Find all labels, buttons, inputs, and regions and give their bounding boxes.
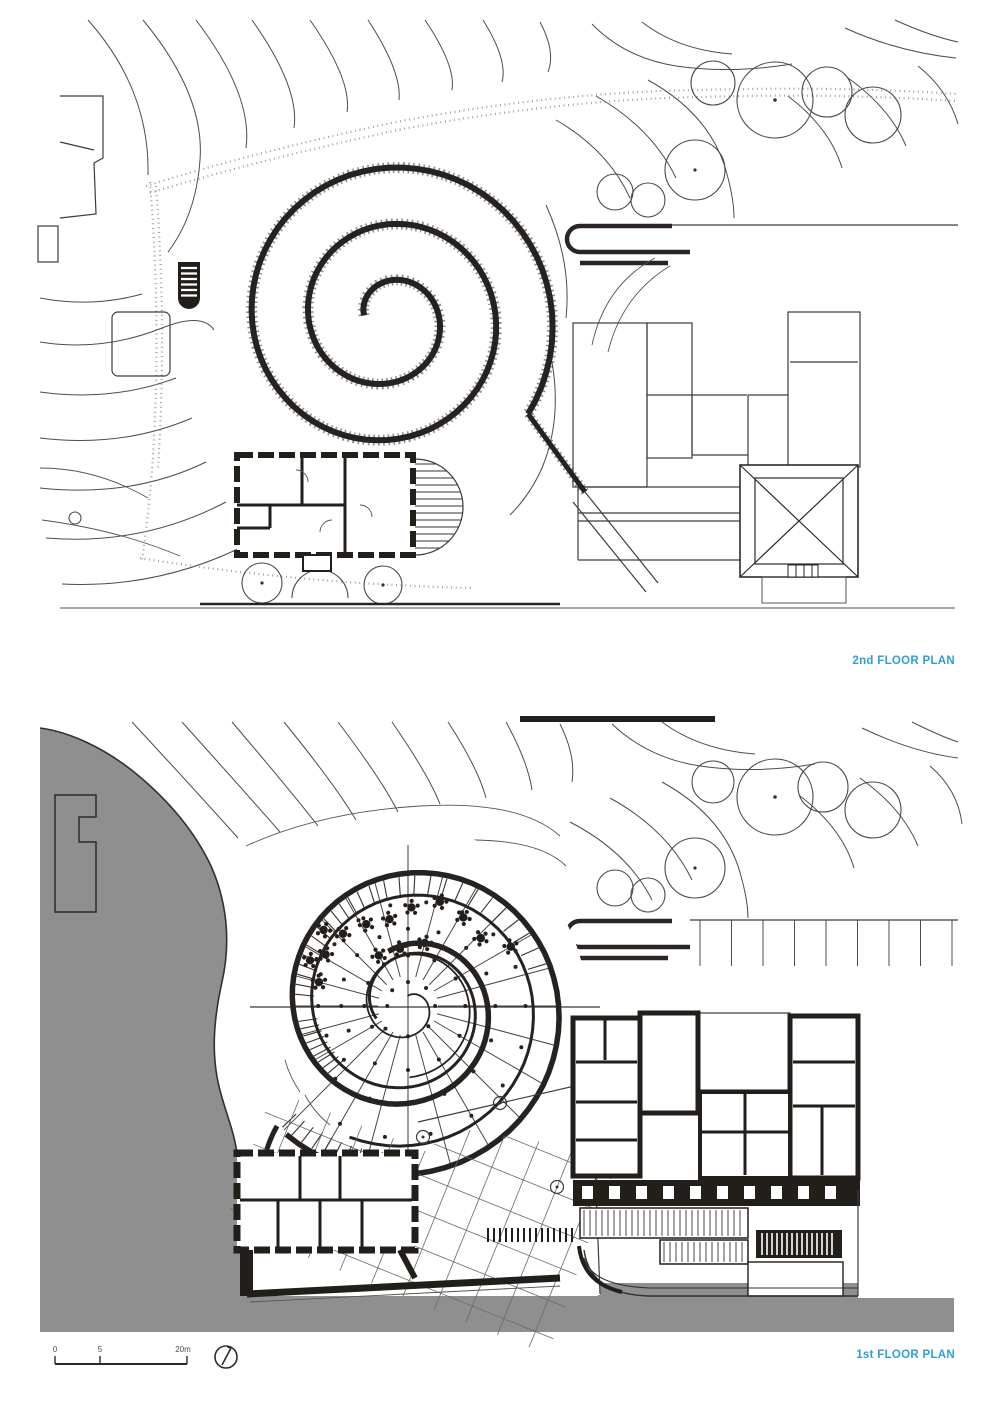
boardwalk-deck bbox=[580, 1208, 748, 1264]
access-road bbox=[567, 225, 958, 352]
scale-bar: 0 5 20m bbox=[53, 1345, 191, 1364]
lodge-building-complex bbox=[573, 1013, 860, 1296]
tree-canopies bbox=[597, 759, 901, 912]
first-floor-plan bbox=[40, 716, 962, 1400]
threshold-hatch bbox=[488, 1228, 572, 1242]
north-arrow-icon bbox=[215, 1346, 237, 1368]
parking-stalls bbox=[700, 920, 952, 966]
skylight-roof bbox=[740, 465, 858, 603]
access-road bbox=[520, 716, 958, 966]
stairs-icon bbox=[178, 262, 200, 309]
scale-tick-mid: 5 bbox=[98, 1345, 103, 1354]
ground-lines bbox=[60, 604, 955, 608]
second-floor-plan bbox=[38, 20, 958, 608]
neighbor-buildings-roofs bbox=[573, 312, 860, 603]
scale-tick-end: 20m bbox=[175, 1345, 191, 1354]
terrace-deck-hatch bbox=[415, 464, 463, 548]
second-floor-plan-label: 2nd FLOOR PLAN bbox=[852, 655, 955, 667]
neighbor-building-fragment bbox=[38, 96, 170, 376]
stairs-icon bbox=[756, 1230, 842, 1258]
contour-lines bbox=[132, 722, 962, 918]
architectural-drawing-sheet: 0 5 20m 2nd FLOOR PLAN 1st FLOOR PLAN bbox=[0, 0, 1000, 1412]
annex-building-plan bbox=[237, 455, 463, 571]
first-floor-plan-label: 1st FLOOR PLAN bbox=[856, 1349, 955, 1361]
site-plan-drawing: 0 5 20m 2nd FLOOR PLAN 1st FLOOR PLAN bbox=[0, 0, 1000, 1412]
scale-tick-start: 0 bbox=[53, 1345, 58, 1354]
